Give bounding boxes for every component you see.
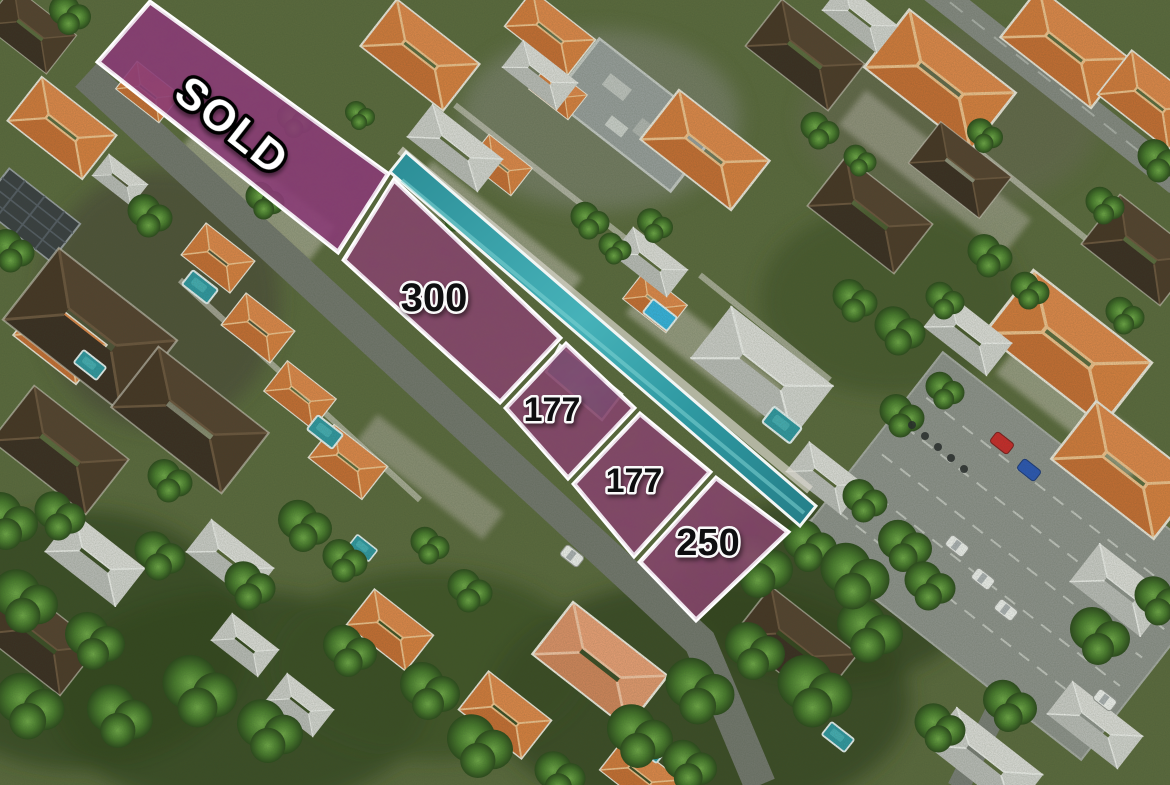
- plot-label-177-upper: 177: [524, 391, 581, 429]
- plot-label-300: 300: [401, 276, 468, 320]
- plot-label-177-lower: 177: [606, 462, 663, 500]
- aerial-photo-stage: SOLD 300 177 177 250: [0, 0, 1170, 785]
- aerial-photo: SOLD 300 177 177 250: [0, 0, 1170, 785]
- plot-label-250: 250: [676, 522, 739, 564]
